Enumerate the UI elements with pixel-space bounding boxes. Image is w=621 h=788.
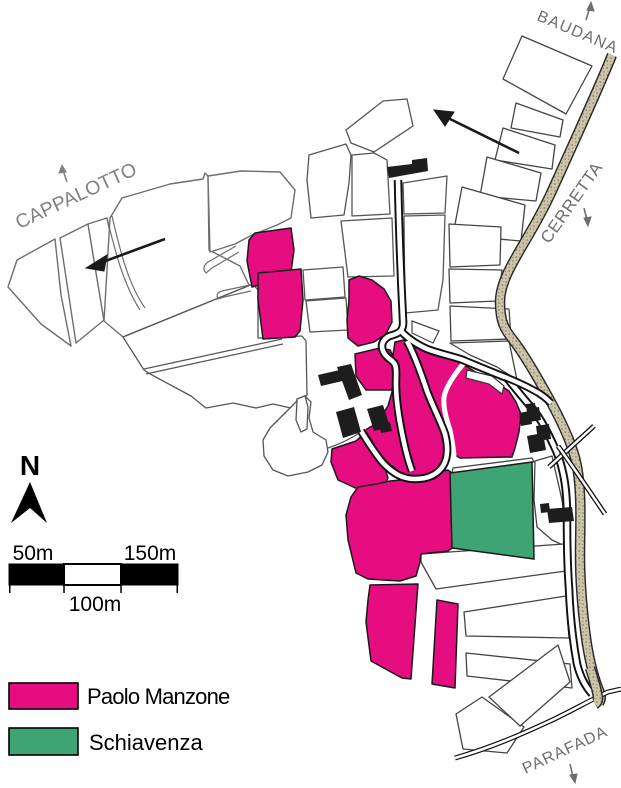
svg-text:150m: 150m: [124, 542, 177, 565]
svg-text:Schiavenza: Schiavenza: [89, 730, 204, 755]
svg-text:Paolo Manzone: Paolo Manzone: [87, 684, 230, 709]
svg-text:100m: 100m: [69, 593, 122, 616]
svg-text:50m: 50m: [13, 542, 54, 565]
svg-text:N: N: [20, 450, 40, 481]
